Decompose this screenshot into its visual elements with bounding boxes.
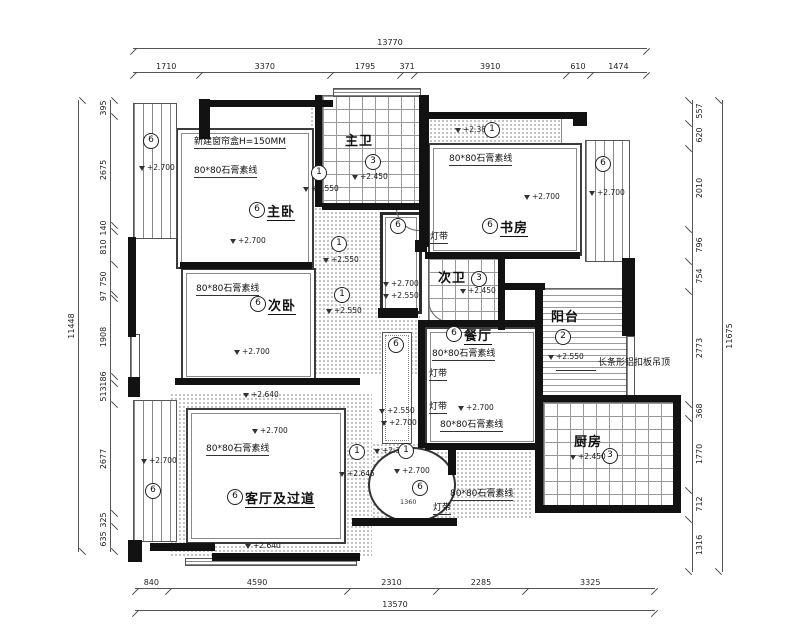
level-oval: +2.700 [394,466,430,475]
level-second-bath: +2.450 [460,286,496,295]
level-corridor: +2.550 [303,184,339,193]
wall [322,203,422,210]
wall [212,553,360,561]
room-label-master-bedroom: 主卧 [267,201,295,221]
dim-label: 754 [695,269,704,284]
wall [128,377,140,397]
tag-circle: 6 [446,326,462,342]
dim-label: 11675 [725,323,734,348]
dim-label: 712 [695,497,704,512]
wall [535,398,543,513]
tag-circle: 3 [471,271,487,287]
level-duct-a: +2.550 [379,406,415,415]
window-balcony-right [626,336,635,400]
wall [537,395,677,402]
dimension-bottom-total: 13570 [135,598,655,610]
wall [150,543,215,551]
wall [543,505,681,513]
dim-label: 2285 [471,578,491,587]
tag-circle: 6 [390,218,406,234]
wall [415,240,427,252]
wall [128,237,136,337]
level-shaft-b: +2.550 [383,291,419,300]
note-gypsum-line: 80*80石膏素线 [206,441,269,456]
room-label-balcony: 阳台 [551,306,579,325]
dimension-left-total: 11448 [66,100,78,552]
wall [352,518,457,526]
wall [448,445,456,475]
note-alu-ceiling: 长条形铝扣板吊顶 [598,355,670,368]
tag-circle: 1 [311,165,327,181]
dim-label: 610 [570,62,585,71]
note-gypsum-line: 80*80石膏素线 [440,417,503,432]
tag-circle: 6 [250,296,266,312]
note-light-strip: 灯带 [429,366,447,381]
level-balcony: +2.550 [548,352,584,361]
dimension-left-segments: 39526751408107509719081865132677325635 [98,100,110,552]
level-living: +2.700 [252,426,288,435]
level-second-bedroom: +2.700 [234,347,270,356]
dim-label: 395 [99,100,108,115]
level-living-band-top: +2.640 [243,390,279,399]
tag-circle: 6 [388,337,404,353]
wall [418,320,425,448]
level-living-corridor: +2.645 [339,469,375,478]
level-master-bedroom: +2.700 [230,236,266,245]
dim-label: 620 [695,127,704,142]
level-bay-bottom-left: +2.700 [141,456,177,465]
tag-circle: 6 [412,480,428,496]
dim-label: 796 [695,237,704,252]
dimension-right-segments: 5576202010796754277336817707121316 [692,100,704,572]
room-label-kitchen: 厨房 [574,431,602,450]
dim-label: 325 [99,512,108,527]
dimension-bottom-segments: 8404590231022853325 [135,576,655,588]
level-bay-top-left: +2.700 [139,163,175,172]
dim-label: 371 [399,62,414,71]
bay-window-bottom-left [133,400,177,542]
level-dining: +2.700 [458,403,494,412]
dim-label: 750 [99,271,108,286]
room-label-dining: 餐厅 [464,325,492,345]
dim-label: 2677 [99,448,108,468]
room-label-second-bath: 次卫 [438,267,466,286]
dim-label: 2773 [695,337,704,357]
floor-plan-canvas: 新建窗帘盒H=150MM 80*80石膏素线 6 主卧 +2.700 6 +2.… [0,0,789,643]
wall [425,443,535,450]
note-gypsum-line: 80*80石膏素线 [450,486,513,501]
level-living-band-bottom: +2.640 [245,541,281,550]
dim-label: 3370 [255,62,275,71]
tag-circle: 6 [249,202,265,218]
dim-label: 1710 [156,62,176,71]
tag-circle: 1 [398,443,414,459]
note-light-strip: 灯带 [429,399,447,414]
level-study: +2.700 [524,192,560,201]
wall [175,378,360,385]
dim-label: 840 [144,578,159,587]
dim-label: 2010 [695,178,704,198]
room-label-living: 客厅及过道 [245,488,315,508]
dim-label: 13570 [382,600,407,609]
room-label-study: 书房 [500,217,528,237]
note-light-strip: 灯带 [430,229,448,244]
level-shaft-a: +2.700 [383,279,419,288]
dim-label: 11448 [67,313,76,338]
dim-label: 3325 [580,578,600,587]
dim-oval-width: 1360 [400,498,417,506]
wall [673,395,681,513]
note-gypsum-line: 80*80石膏素线 [432,346,495,361]
tag-circle: 6 [143,133,159,149]
dim-label: 1908 [99,327,108,347]
note-gypsum-line: 80*80石膏素线 [196,281,259,296]
dim-label: 1795 [355,62,375,71]
dim-label: 810 [99,239,108,254]
dim-label: 1316 [695,535,704,555]
wall [378,308,418,318]
level-duct-b: +2.700 [381,418,417,427]
dim-label: 2675 [99,160,108,180]
dim-label: 4590 [247,578,267,587]
wall [428,112,578,119]
wall [573,112,587,126]
level-master-bath: +2.450 [352,172,388,181]
note-curtain-box: 新建窗帘盒H=150MM [194,134,286,149]
tag-circle: 6 [227,489,243,505]
window-master-bath-top [333,88,421,97]
dim-label: 2310 [381,578,401,587]
leader-line-alu-ceiling [556,370,596,371]
level-corridor: +2.550 [326,306,362,315]
level-kitchen: +2.450 [570,452,606,461]
dim-label: 3910 [480,62,500,71]
tag-circle: 2 [555,329,571,345]
dim-label: 557 [695,104,704,119]
window-second-bedroom-left [130,334,140,380]
tag-circle: 1 [349,444,365,460]
dim-label: 635 [99,531,108,546]
dim-label: 513 [99,386,108,401]
note-gypsum-line: 80*80石膏素线 [194,163,257,178]
level-bay-top-right: +2.700 [589,188,625,197]
tag-circle: 1 [331,236,347,252]
dimension-top-total: 13770 [133,36,647,48]
tag-circle: 1 [334,287,350,303]
dim-label: 1770 [695,444,704,464]
room-master-bedroom [176,128,314,269]
dim-label: 368 [695,403,704,418]
tag-circle: 6 [482,218,498,234]
tag-circle: 1 [484,122,500,138]
dimension-top-segments: 17103370179537139106101474 [133,60,647,72]
note-light-strip: 灯带 [433,500,451,515]
tag-circle: 6 [595,156,611,172]
dim-label: 13770 [377,38,402,47]
level-corridor: +2.550 [323,255,359,264]
wall [128,540,142,562]
room-label-second-bedroom: 次卧 [268,295,296,315]
tag-circle: 6 [145,483,161,499]
tag-circle: 3 [365,154,381,170]
dim-label: 1474 [608,62,628,71]
wall [622,258,635,336]
room-label-master-bath: 主卫 [345,130,373,149]
wall [180,262,312,269]
balcony-ceiling-hatch [537,288,630,400]
dimension-right-total: 11675 [722,100,734,572]
note-gypsum-line: 80*80石膏素线 [449,151,512,166]
